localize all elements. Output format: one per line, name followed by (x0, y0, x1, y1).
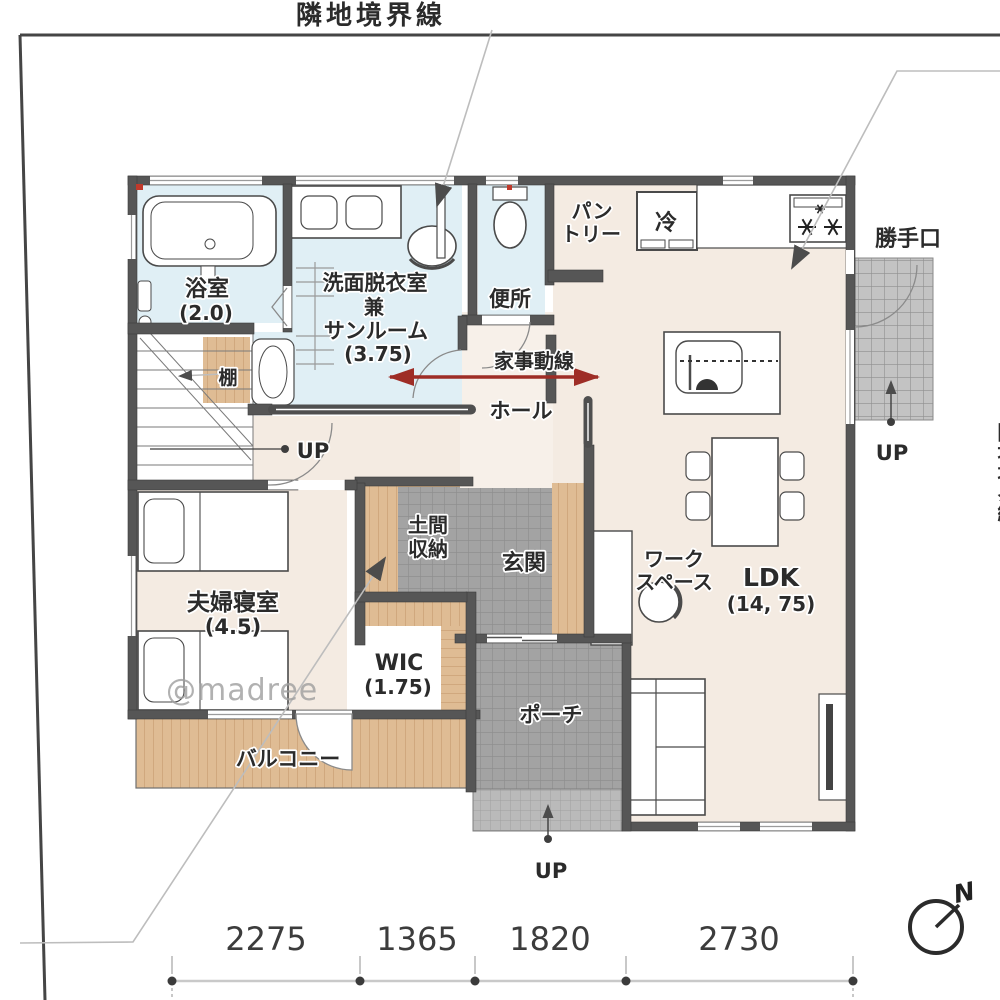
dimension-1820: 1820 (509, 920, 590, 958)
bedroom-size: (4.5) (205, 615, 261, 639)
toilet-label: 便所 (489, 287, 531, 311)
housework-flow-label: 家事動線 (494, 349, 574, 373)
bath-size: (2.0) (179, 301, 233, 325)
bed-1 (138, 492, 288, 571)
bedroom-label: 夫婦寝室 (187, 589, 279, 616)
hall-label: ホール (490, 399, 553, 423)
wall-pantry-south (548, 270, 603, 282)
bath-door-opening (284, 286, 292, 328)
backdoor-steps (855, 258, 933, 420)
wic-label: WIC (375, 651, 424, 676)
dresser-chair (408, 226, 456, 268)
washing-machine (252, 339, 294, 405)
backdoor-label: 勝手口 (875, 227, 941, 252)
compass: N (910, 876, 978, 953)
balcony-label: バルコニー (236, 747, 341, 771)
toilet-fixture (493, 187, 527, 248)
workspace-label-1: ワーク (644, 547, 704, 571)
bath-label: 浴室 (185, 276, 229, 302)
entrance-step-wood (552, 483, 585, 634)
wall-doma-north (355, 477, 473, 486)
corner-marker-bath (136, 184, 143, 190)
ldk-size: (14, 75) (727, 592, 816, 616)
pantry-label-1: パン (572, 199, 613, 223)
sofa (629, 679, 705, 815)
washroom-label-3: サンルーム (324, 319, 428, 343)
wall-hall-ldk-lower (584, 445, 594, 637)
floor-plan-page: 隣地境界線 隣地境界線 浴室 (2.0) 洗面脱衣室 兼 サンルーム (3.75… (0, 0, 1000, 1000)
porch-label: ポーチ (520, 703, 583, 727)
workspace-label-2: スペース (635, 570, 713, 594)
tv-board (819, 694, 848, 800)
dimension-line: 2275 1365 1820 2730 (168, 920, 858, 1000)
compass-needle (936, 905, 959, 927)
backdoor-opening (846, 250, 854, 274)
toilet-door-opening (482, 316, 530, 325)
watermark: @madree (166, 673, 318, 708)
doma-shelf-wood (363, 483, 398, 595)
corner-marker-toilet (507, 185, 512, 190)
boundary-right-label: 隣地境界線 (994, 421, 1000, 522)
shelf-label: 棚 (218, 366, 237, 389)
washroom-label-2: 兼 (364, 295, 385, 319)
wall-hall-washroom-stub (458, 316, 467, 350)
wall-right-exterior (846, 176, 855, 831)
stairs-up-label: UP (297, 439, 329, 463)
doma-label-1: 土間 (408, 513, 448, 537)
wic-shelf-top (365, 600, 467, 626)
wall-doma-south (355, 592, 467, 602)
boundary-top-label: 隣地境界線 (296, 0, 446, 31)
backdoor-up-label: UP (876, 441, 908, 465)
washroom-label-1: 洗面脱衣室 (323, 271, 428, 295)
wall-doma-left (355, 483, 365, 645)
refrigerator-label: 冷 (655, 210, 677, 236)
kitchen-island (664, 332, 780, 414)
floor-plan-drawing: 隣地境界線 隣地境界線 浴室 (2.0) 洗面脱衣室 兼 サンルーム (3.75… (0, 0, 1000, 1000)
hall-front-floor (347, 416, 460, 477)
entrance-label: 玄関 (502, 550, 546, 576)
washroom-size: (3.75) (344, 342, 412, 366)
wall-toilet-left (468, 184, 477, 316)
dimension-2275: 2275 (225, 920, 306, 958)
wall-bedroom-north-stub (345, 480, 357, 490)
wall-porch-left (466, 592, 476, 792)
shower-corner (138, 281, 151, 328)
wic-size: (1.75) (364, 675, 432, 699)
wall-porch-right (622, 642, 631, 831)
dimension-2730: 2730 (698, 920, 779, 958)
dimension-1365: 1365 (376, 920, 457, 958)
doma-label-2: 収納 (408, 537, 448, 561)
ldk-label: LDK (743, 563, 801, 592)
pantry-label-2: トリー (561, 222, 621, 246)
compass-north-label: N (951, 876, 978, 909)
porch-up-label: UP (535, 859, 567, 883)
vanity-counter (291, 186, 401, 238)
